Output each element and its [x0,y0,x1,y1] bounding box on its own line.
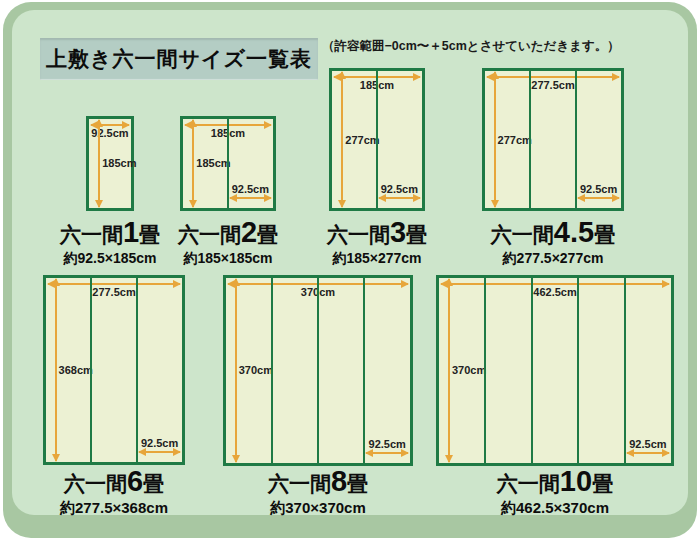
tatami-divider [271,278,273,463]
tatami-divider [575,71,577,208]
width-arrow [48,283,181,285]
tatami-divider [624,278,626,463]
height-dim-label: 277cm [498,134,532,146]
mat-rect: 462.5cm 370cm 92.5cm [436,275,674,466]
panel-width-arrow [366,452,408,454]
width-arrow [441,283,669,285]
panel-width-arrow [578,197,620,199]
page-title: 上敷き六一間サイズ一覧表 [40,38,318,80]
tolerance-note: （許容範囲−0cm〜＋5cmとさせていただきます。） [322,38,620,55]
mat-name-suffix: 畳 [594,223,615,246]
tatami-divider [90,278,92,462]
panel-width-arrow [139,451,181,453]
tatami-divider [376,71,378,208]
mat-name-prefix: 六一間 [327,223,390,246]
width-arrow [487,76,620,78]
panel-dim-label: 92.5cm [228,183,273,195]
height-dim-label: 370cm [239,364,273,376]
mat-rect: 185cm 277cm 92.5cm [329,68,424,211]
mat-name: 六一間10畳 [405,466,700,499]
height-dim-label: 368cm [59,364,93,376]
height-arrow [192,120,194,207]
content-layer: 上敷き六一間サイズ一覧表 （許容範囲−0cm〜＋5cmとさせていただきます。） … [0,0,700,541]
panel-dim-label: 92.5cm [377,183,422,195]
mat-name-suffix: 畳 [143,472,164,495]
mat-rect: 185cm 185cm 92.5cm [180,116,275,211]
panel-dim-label: 92.5cm [364,438,410,450]
mat-caption: 六一間10畳 約462.5×370cm [405,466,700,518]
panel-dim-label: 92.5cm [137,437,183,449]
mat-name-number: 6 [127,465,143,497]
mat-name-prefix: 六一間 [497,472,560,495]
width-dim-label: 462.5cm [439,286,671,298]
height-arrow [341,72,343,207]
mat-name-suffix: 畳 [592,472,613,495]
mat-name-suffix: 畳 [347,472,368,495]
tatami-divider [363,278,365,463]
mat-rect: 277.5cm 368cm 92.5cm [43,275,186,465]
mat-name-prefix: 六一間 [491,223,554,246]
mat-name-number: 10 [560,465,592,497]
mat-size-text: 約462.5×370cm [405,499,700,518]
mat-name-number: 4.5 [554,216,594,248]
mat-name-number: 8 [331,465,347,497]
width-dim-label: 277.5cm [46,286,183,298]
height-arrow [448,279,450,462]
mat-rect: 370cm 370cm 92.5cm [223,275,414,466]
mat-rect: 277.5cm 277cm 92.5cm [482,68,625,211]
tatami-divider [227,119,229,208]
height-dim-label: 185cm [102,157,136,169]
height-arrow [494,72,496,207]
tatami-divider [317,278,319,463]
mat-name: 六一間4.5畳 [403,217,700,250]
height-arrow [55,279,57,461]
tatami-divider [484,278,486,463]
width-dim-label: 277.5cm [485,79,622,91]
panel-dim-label: 92.5cm [576,183,622,195]
height-arrow [235,279,237,462]
tatami-divider [531,278,533,463]
panel-width-arrow [230,197,271,199]
tatami-divider [136,278,138,462]
tatami-divider [529,71,531,208]
mat-caption: 六一間4.5畳 約277.5×277cm [403,217,700,268]
height-dim-label: 185cm [196,157,230,169]
panel-dim-label: 92.5cm [625,438,671,450]
mat-name-prefix: 六一間 [268,472,331,495]
mat-name-prefix: 六一間 [64,472,127,495]
height-dim-label: 370cm [452,364,486,376]
height-arrow [98,120,100,207]
panel-width-arrow [379,197,420,199]
mat-rect: 92.5cm 185cm [86,116,134,211]
mat-size-text: 約277.5×277cm [403,250,700,268]
panel-width-arrow [627,452,669,454]
height-dim-label: 277cm [345,134,379,146]
tatami-divider [577,278,579,463]
width-dim-label: 92.5cm [89,127,131,139]
